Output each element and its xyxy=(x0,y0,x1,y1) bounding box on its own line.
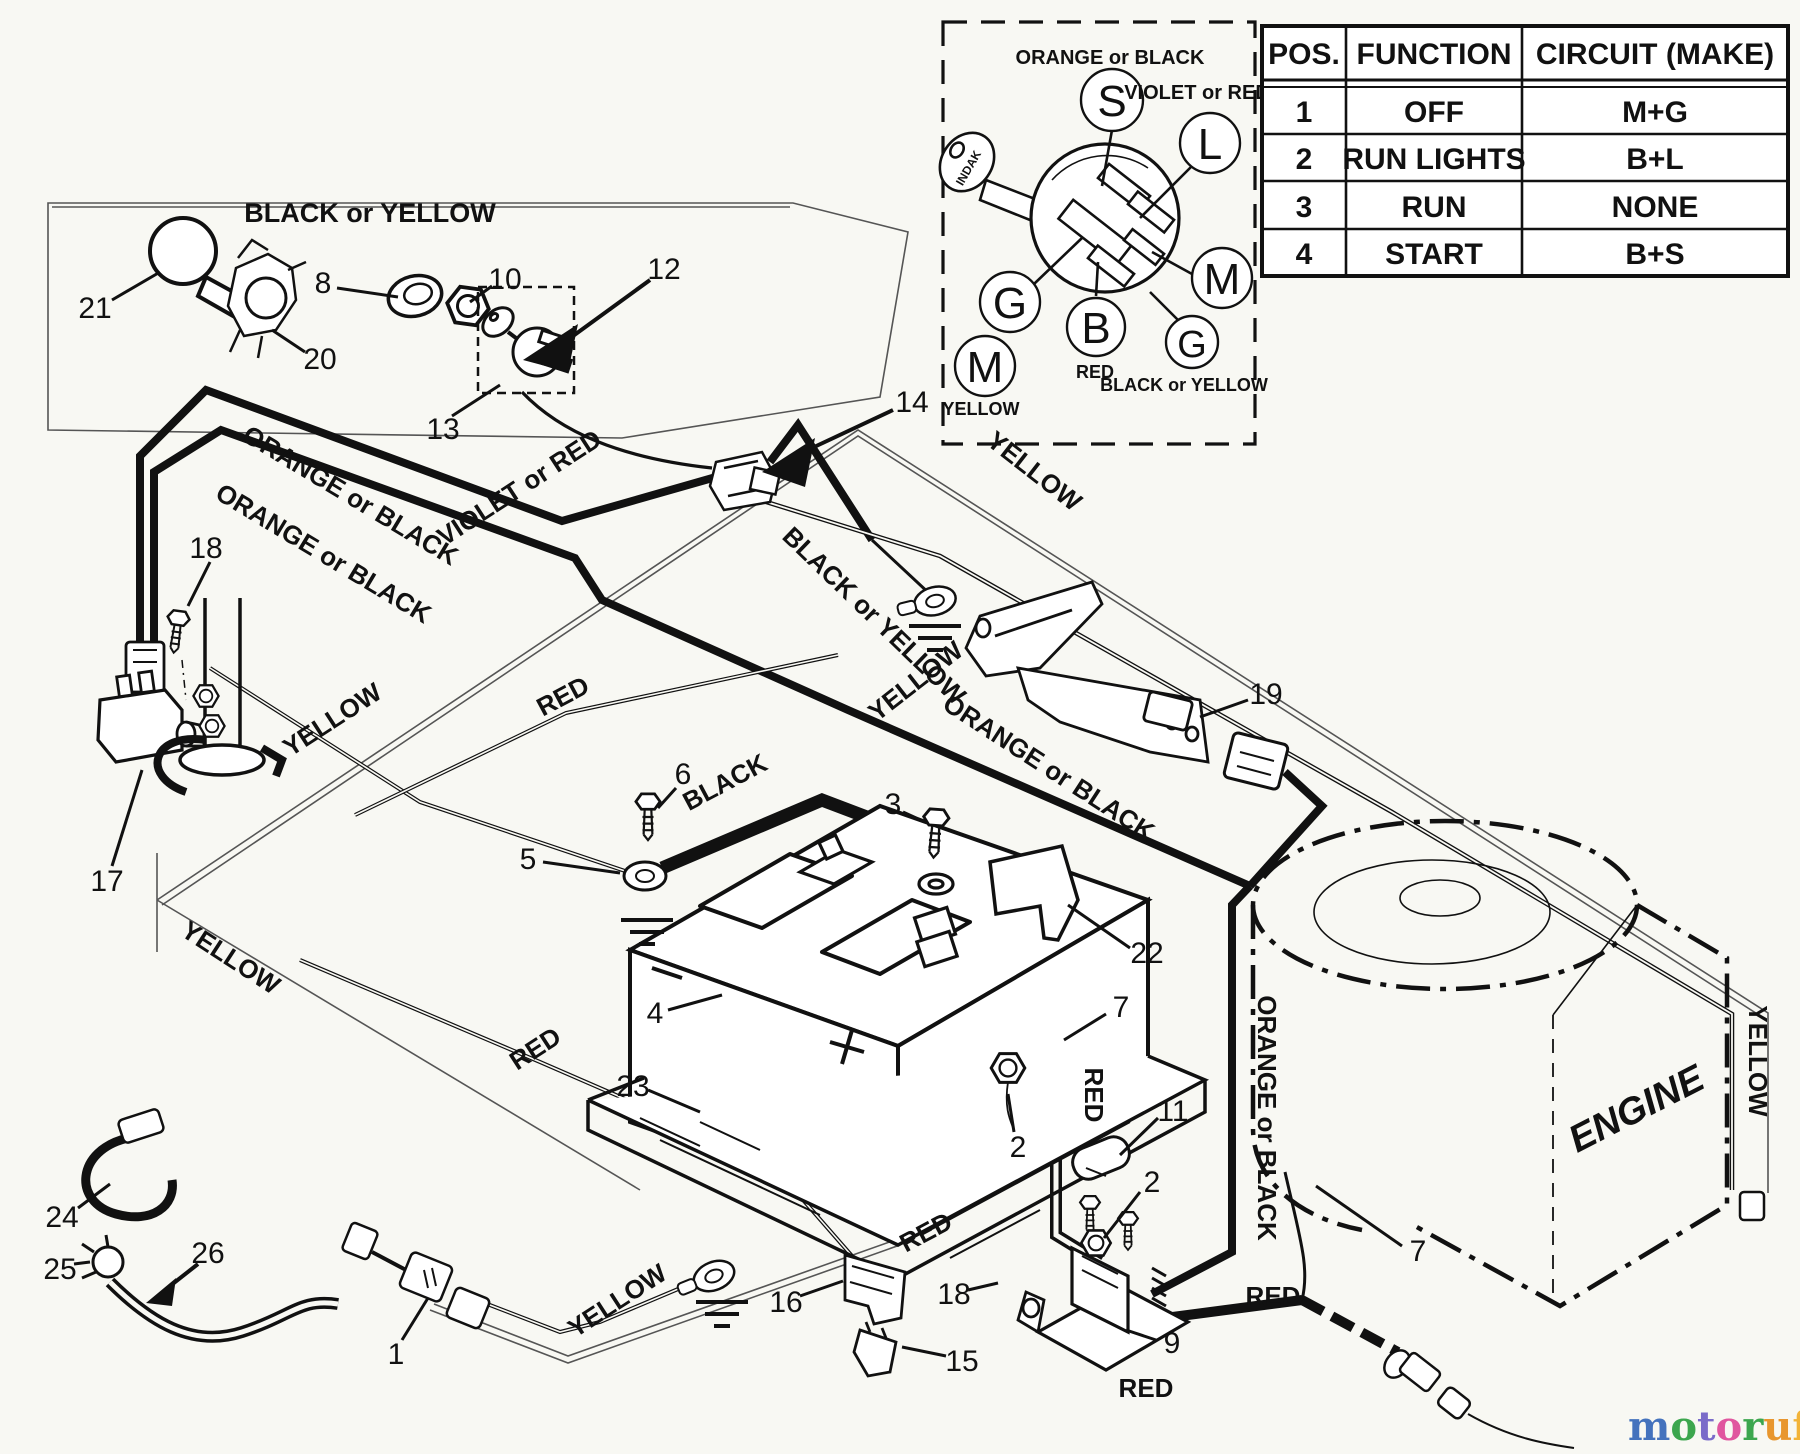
terminal-b: B xyxy=(1081,304,1110,353)
switch-17-body xyxy=(98,690,182,762)
label-yellow-panel: YELLOW xyxy=(176,915,286,1001)
callout-16: 16 xyxy=(769,1286,802,1319)
label-black-cable: BLACK xyxy=(678,747,773,816)
callout-25: 25 xyxy=(43,1253,76,1286)
callout-1: 1 xyxy=(388,1338,405,1371)
terminal-m2: M xyxy=(967,343,1004,392)
callout-2b: 2 xyxy=(1144,1166,1161,1199)
engine-label: ENGINE xyxy=(1562,1057,1712,1161)
inset-label-yellow: YELLOW xyxy=(943,399,1020,419)
callout-26: 26 xyxy=(191,1237,224,1270)
svg-text:4: 4 xyxy=(1296,238,1313,271)
bulb-socket-20 xyxy=(228,240,306,358)
ignition-inset: INDAK S L G B M G M ORANGE or BLACK VIOL… xyxy=(929,22,1270,444)
label-black-yellow-mid: BLACK or YELLOW xyxy=(777,521,972,711)
callout-14: 14 xyxy=(895,386,928,419)
terminal-g2: G xyxy=(1177,324,1207,366)
callout-2a: 2 xyxy=(1010,1131,1027,1164)
callout-23: 23 xyxy=(616,1070,649,1103)
table-header-circuit: CIRCUIT (MAKE) xyxy=(1536,38,1774,71)
terminal-m1: M xyxy=(1204,255,1241,304)
callout-20: 20 xyxy=(303,343,336,376)
engine-group xyxy=(1253,821,1764,1448)
logo-letter: m xyxy=(1628,1403,1670,1450)
screw-6 xyxy=(636,794,660,840)
callout-3: 3 xyxy=(885,788,902,821)
clamp-25 xyxy=(82,1235,123,1278)
logo-letter: r xyxy=(1742,1403,1764,1450)
fuse-15 xyxy=(854,1330,896,1376)
svg-text:NONE: NONE xyxy=(1612,191,1699,224)
label-yellow-vertical: YELLOW xyxy=(1743,1005,1773,1117)
callout-22: 22 xyxy=(1130,937,1163,970)
spark-plug xyxy=(1379,1345,1574,1448)
callout-7a: 7 xyxy=(1113,991,1130,1024)
logo-letter: o xyxy=(1670,1403,1697,1450)
svg-text:RUN: RUN xyxy=(1402,191,1467,224)
callout-5: 5 xyxy=(520,843,537,876)
svg-text:M+G: M+G xyxy=(1622,96,1688,129)
yellow-wire-connector xyxy=(1740,1192,1764,1220)
label-red-bottom: RED xyxy=(1119,1373,1174,1403)
label-yellow-upper: YELLOW xyxy=(981,425,1087,517)
fuse-group xyxy=(845,1255,905,1376)
callout-15: 15 xyxy=(945,1345,978,1378)
label-black-or-yellow-top: BLACK or YELLOW xyxy=(244,198,496,228)
terminal-s: S xyxy=(1097,77,1126,126)
logo-letter: t xyxy=(1697,1403,1716,1450)
wiring-diagram-page: INDAK S L G B M G M ORANGE or BLACK VIOL… xyxy=(0,0,1800,1454)
callout-9: 9 xyxy=(1164,1327,1181,1360)
terminal-l: L xyxy=(1198,120,1222,169)
cable-24 xyxy=(86,1138,173,1217)
inset-label-top: ORANGE or BLACK xyxy=(1016,47,1205,69)
table-header-pos: POS. xyxy=(1268,38,1340,71)
callout-7b: 7 xyxy=(1410,1235,1427,1268)
connector-19 xyxy=(1223,732,1288,790)
valve-post xyxy=(158,598,282,792)
label-orange-black-2: ORANGE or BLACK xyxy=(211,477,437,629)
motoruf-logo: motoruf.de xyxy=(1628,1403,1800,1450)
callout-4: 4 xyxy=(647,997,664,1030)
label-orange-black-vertical: ORANGE or BLACK xyxy=(1252,995,1282,1241)
svg-text:START: START xyxy=(1385,238,1483,271)
callout-24: 24 xyxy=(45,1201,78,1234)
screw-18a xyxy=(163,610,191,655)
connector-1 xyxy=(341,1222,490,1330)
bulb-21 xyxy=(150,218,216,284)
callout-10: 10 xyxy=(488,263,521,296)
callout-18b: 18 xyxy=(937,1278,970,1311)
table-row: 2 RUN LIGHTS B+L xyxy=(1296,143,1684,176)
logo-letter: u xyxy=(1763,1403,1792,1450)
battery-group xyxy=(588,806,1205,1278)
label-red-vertical: RED xyxy=(1079,1068,1109,1123)
svg-text:B+S: B+S xyxy=(1625,238,1684,271)
terminal-g1: G xyxy=(993,279,1027,328)
callout-6: 6 xyxy=(675,758,692,791)
wire-red-upper xyxy=(355,655,838,815)
wiring-diagram: INDAK S L G B M G M ORANGE or BLACK VIOL… xyxy=(0,0,1800,1454)
label-red-engine: RED xyxy=(1246,1281,1301,1311)
callout-11: 11 xyxy=(1157,1095,1188,1128)
washer-5 xyxy=(624,862,666,890)
callout-18a: 18 xyxy=(189,532,222,565)
bottom-left-parts xyxy=(82,1108,491,1337)
logo-letter: o xyxy=(1716,1403,1743,1450)
callout-17: 17 xyxy=(90,865,123,898)
callout-12: 12 xyxy=(647,253,680,286)
stud-1 xyxy=(1080,1196,1100,1234)
svg-text:1: 1 xyxy=(1296,96,1313,129)
inset-label-black-yellow: BLACK or YELLOW xyxy=(1100,375,1268,395)
lamp-group xyxy=(150,218,574,393)
svg-text:B+L: B+L xyxy=(1626,143,1684,176)
wire-orange-black-2 xyxy=(154,430,1250,886)
function-table: POS. FUNCTION CIRCUIT (MAKE) 1 OFF M+G 2… xyxy=(1262,26,1788,276)
nut-2-left xyxy=(991,1054,1025,1083)
inset-label-violet: VIOLET or RED xyxy=(1124,82,1270,104)
table-header-function: FUNCTION xyxy=(1357,38,1512,71)
svg-text:motoruf.de: motoruf.de xyxy=(1628,1403,1800,1450)
logo-letter: f xyxy=(1792,1403,1800,1450)
svg-text:RUN LIGHTS: RUN LIGHTS xyxy=(1342,143,1525,176)
callout-8: 8 xyxy=(315,267,332,300)
callout-21: 21 xyxy=(78,292,111,325)
callout-19: 19 xyxy=(1249,678,1282,711)
svg-text:2: 2 xyxy=(1296,143,1313,176)
callout-13: 13 xyxy=(426,413,459,446)
svg-text:3: 3 xyxy=(1296,191,1313,224)
svg-text:OFF: OFF xyxy=(1404,96,1464,129)
